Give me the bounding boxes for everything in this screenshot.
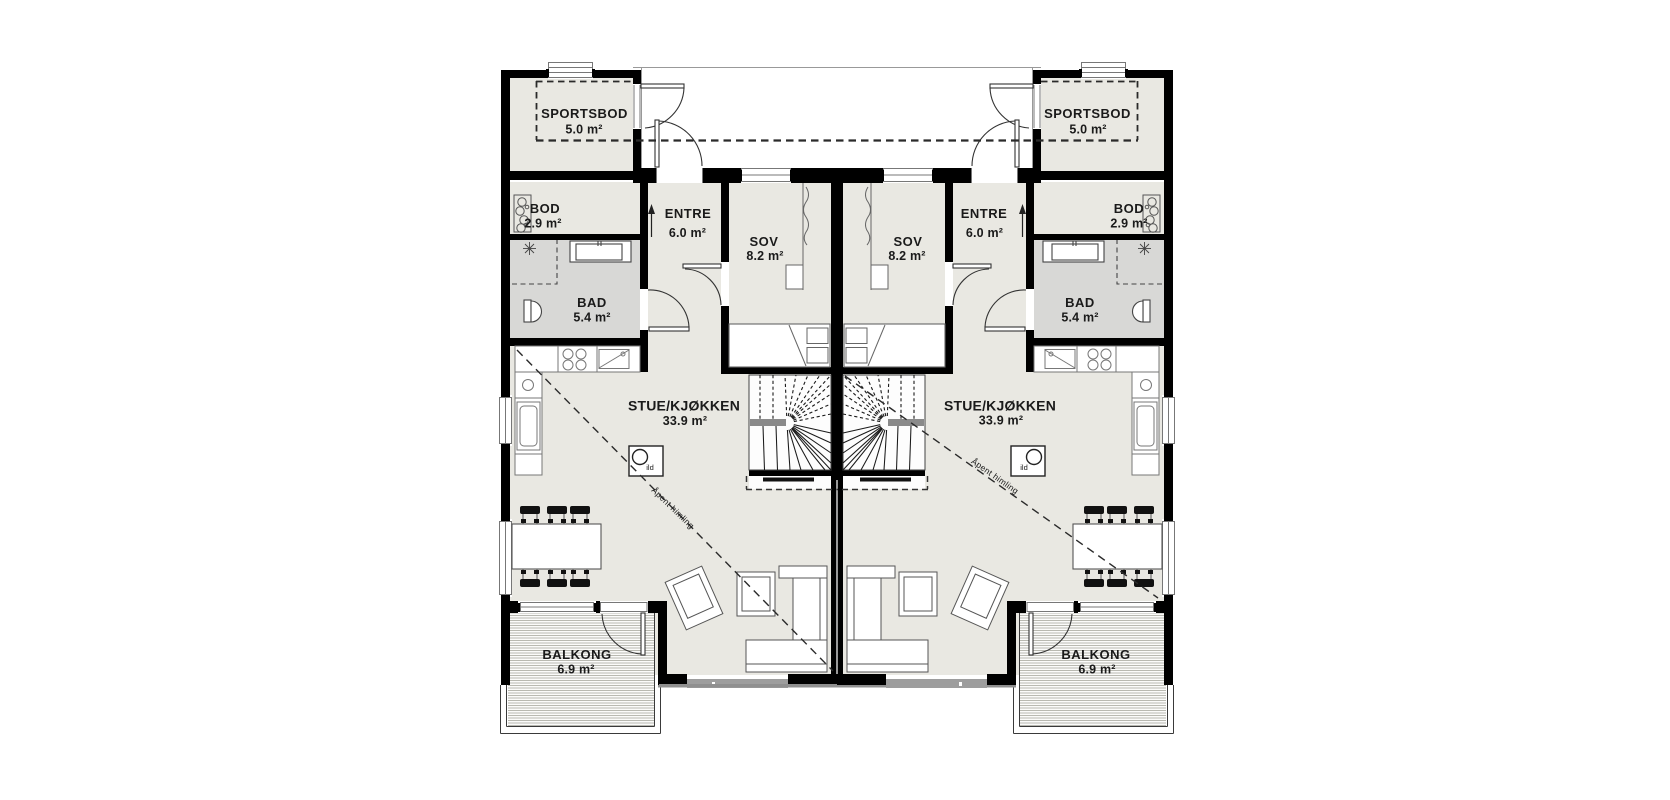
svg-text:STUE/KJØKKEN: STUE/KJØKKEN [944, 398, 1056, 414]
svg-text:8.2 m²: 8.2 m² [746, 249, 783, 263]
svg-text:BAD: BAD [577, 295, 607, 310]
svg-text:BOD: BOD [1114, 201, 1144, 216]
svg-text:ENTRE: ENTRE [961, 206, 1008, 221]
svg-text:33.9 m²: 33.9 m² [663, 414, 707, 428]
svg-text:8.2 m²: 8.2 m² [888, 249, 925, 263]
svg-text:5.4 m²: 5.4 m² [1061, 311, 1098, 325]
svg-text:SPORTSBOD: SPORTSBOD [1044, 106, 1131, 121]
svg-text:6.0 m²: 6.0 m² [669, 226, 706, 240]
svg-text:BALKONG: BALKONG [542, 647, 611, 662]
svg-text:6.9 m²: 6.9 m² [557, 663, 594, 677]
svg-text:5.0 m²: 5.0 m² [565, 123, 602, 137]
svg-text:6.9 m²: 6.9 m² [1078, 663, 1115, 677]
svg-text:33.9 m²: 33.9 m² [979, 414, 1023, 428]
svg-text:ild: ild [1020, 463, 1028, 472]
svg-text:ild: ild [646, 463, 654, 472]
svg-text:SOV: SOV [750, 234, 779, 249]
svg-text:5.4 m²: 5.4 m² [573, 311, 610, 325]
svg-text:ENTRE: ENTRE [665, 206, 712, 221]
svg-text:BOD: BOD [530, 201, 560, 216]
svg-text:2.9 m²: 2.9 m² [524, 217, 561, 231]
svg-text:BAD: BAD [1065, 295, 1095, 310]
svg-text:6.0 m²: 6.0 m² [966, 226, 1003, 240]
svg-text:SPORTSBOD: SPORTSBOD [541, 106, 628, 121]
svg-text:5.0 m²: 5.0 m² [1069, 123, 1106, 137]
svg-text:SOV: SOV [894, 234, 923, 249]
svg-text:STUE/KJØKKEN: STUE/KJØKKEN [628, 398, 740, 414]
svg-text:2.9 m²: 2.9 m² [1110, 217, 1147, 231]
svg-text:BALKONG: BALKONG [1061, 647, 1130, 662]
